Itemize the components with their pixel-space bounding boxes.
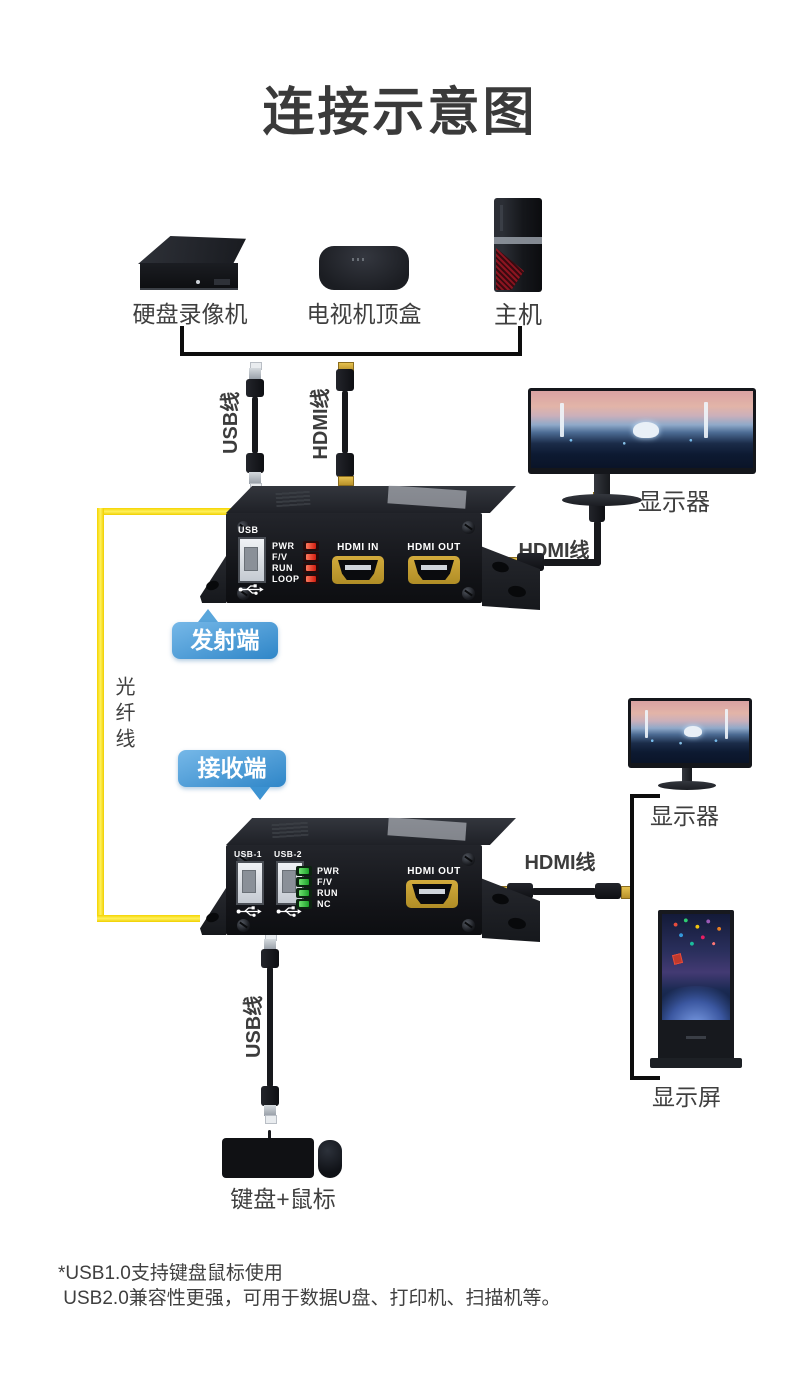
- usb-cable-bottom-label: USB线: [237, 998, 261, 1058]
- pc-tower-label: 主机: [470, 295, 566, 330]
- mouse-image: [318, 1140, 342, 1178]
- rx-usb2-label: USB-2: [274, 849, 302, 859]
- fiber-label: 光纤线: [112, 676, 138, 766]
- rx-led-label: F/V: [317, 877, 333, 887]
- scene-earth: [662, 986, 730, 1020]
- connection-diagram: 连接示意图 硬盘录像机 电视机顶盒 主机 USB线 HDMI线 光纤线 USB: [0, 0, 800, 1397]
- tx-hdmi-in-port: [332, 556, 384, 584]
- screw-icon: [462, 521, 475, 534]
- usb-cable-bottom: [261, 1086, 279, 1106]
- hdmi-port-tongue: [421, 565, 447, 570]
- tx-led-label: LOOP: [272, 574, 300, 584]
- scene-minaret: [560, 403, 564, 437]
- tx-hdmi-out-port: [408, 556, 460, 584]
- usb-port-tongue: [282, 870, 296, 893]
- rx-led: [299, 901, 309, 907]
- dvr-image: [138, 236, 246, 264]
- usb-icon: [236, 905, 262, 918]
- screw-icon: [462, 587, 475, 600]
- dvr-front-panel: [140, 263, 238, 290]
- tx-led: [306, 565, 316, 571]
- dvr-label: 硬盘录像机: [120, 295, 260, 329]
- footnote-line2: USB2.0兼容性更强，可用于数据U盘、打印机、扫描机等。: [58, 1283, 560, 1310]
- tx-led-label: F/V: [272, 552, 288, 562]
- displays-bracket-line: [630, 794, 634, 1080]
- rx-hdmi-out-label: HDMI OUT: [404, 866, 464, 877]
- usb-cable-top: [252, 396, 258, 454]
- hdmi-port-tongue: [345, 565, 371, 570]
- scene-dome: [684, 726, 702, 737]
- hdmi-cable-top-label: HDMI线: [304, 386, 328, 462]
- rx-led: [299, 879, 309, 885]
- pc-tower-band: [494, 237, 542, 244]
- tx-usb-port: [238, 537, 266, 583]
- screw-icon: [237, 919, 250, 932]
- monitor-top-base: [562, 494, 642, 506]
- pc-tower-slot: [500, 205, 503, 231]
- usb-cable-top: [246, 379, 264, 397]
- hdmi-cable-top: [336, 369, 354, 391]
- tx-badge-arrow: [198, 609, 218, 622]
- tx-led: [306, 554, 316, 560]
- fiber-line-vertical: [97, 508, 104, 922]
- footnote-line1: *USB1.0支持键盘鼠标使用: [58, 1258, 283, 1285]
- tx-led: [306, 576, 316, 582]
- monitor-top-label: 显示器: [638, 482, 748, 517]
- monitor-mid-stand: [682, 768, 692, 782]
- receiver-ear-left: [200, 888, 226, 935]
- hdmi-cable-rx: [531, 888, 597, 895]
- usb-port-tongue: [242, 870, 256, 893]
- keyboard-image: [222, 1138, 314, 1178]
- rx-led: [299, 890, 309, 896]
- monitor-mid-label: 显示器: [650, 797, 760, 831]
- hdmi-port-cavity: [338, 560, 378, 580]
- tx-led-label: PWR: [272, 541, 295, 551]
- rx-hdmi-out-port: [406, 880, 458, 908]
- dvr-knob: [196, 280, 200, 284]
- signage-base: [650, 1058, 742, 1068]
- rx-usb1-port: [236, 861, 264, 905]
- tx-hdmi-out-label: HDMI OUT: [404, 542, 464, 553]
- transmitter-top: [226, 486, 516, 513]
- scene-minaret: [704, 402, 708, 438]
- rx-badge: 接收端: [178, 750, 286, 787]
- usb-cable-bottom: [267, 966, 273, 1088]
- hdmi-cable-tx: [542, 559, 601, 566]
- keyboard-mouse-label: 键盘+鼠标: [208, 1180, 358, 1214]
- usb-icon: [238, 583, 264, 596]
- page-title: 连接示意图: [0, 70, 800, 145]
- sources-bracket-line: [180, 326, 522, 356]
- transmitter-ear-left: [200, 556, 226, 603]
- hdmi-cable-top: [342, 390, 348, 454]
- receiver-top: [226, 818, 516, 845]
- screw-icon: [462, 853, 475, 866]
- settop-box-image: [319, 246, 409, 290]
- tx-led-label: RUN: [272, 563, 293, 573]
- screw-icon: [462, 919, 475, 932]
- scene-minaret: [725, 709, 728, 739]
- usb-port-tongue: [244, 547, 258, 571]
- scene-dome: [633, 422, 659, 438]
- hdmi-port-tongue: [419, 889, 445, 894]
- signage-logo: [686, 1036, 706, 1039]
- rx-led-label: RUN: [317, 888, 338, 898]
- rx-badge-arrow: [250, 787, 270, 800]
- monitor-top-stand: [594, 474, 610, 496]
- rx-led-label: PWR: [317, 866, 340, 876]
- usb-cable-bottom: [265, 1115, 277, 1124]
- tx-led: [306, 543, 316, 549]
- tx-badge: 发射端: [172, 622, 278, 659]
- hdmi-cable-rx-label: HDMI线: [518, 846, 602, 875]
- monitor-top-screen: [531, 391, 753, 468]
- fiber-line-bottom: [97, 915, 200, 922]
- signage-screen: [662, 914, 730, 1020]
- transmitter-sticker: [276, 490, 311, 507]
- usb-cable-top: [246, 453, 264, 473]
- hdmi-cable-top: [336, 453, 354, 477]
- hdmi-cable-tx: [594, 520, 601, 566]
- hdmi-cable-top: [338, 476, 354, 486]
- scene-minaret: [645, 710, 648, 738]
- scene-gift: [672, 953, 683, 965]
- monitor-mid-base: [658, 781, 716, 790]
- tx-usb-port-label: USB: [238, 525, 259, 535]
- rx-usb1-label: USB-1: [234, 849, 262, 859]
- rx-led: [299, 868, 309, 874]
- settop-box-dots: [352, 258, 366, 261]
- signage-label: 显示屏: [652, 1078, 762, 1112]
- rx-led-label: NC: [317, 899, 331, 909]
- hdmi-port-cavity: [414, 560, 454, 580]
- hdmi-port-cavity: [412, 884, 452, 904]
- hdmi-cable-rx: [595, 883, 621, 899]
- usb-cable-top-label: USB线: [214, 394, 238, 454]
- tx-hdmi-in-label: HDMI IN: [330, 542, 386, 553]
- monitor-mid-screen: [631, 701, 749, 763]
- receiver-sticker: [272, 821, 309, 838]
- dvr-ports: [214, 279, 230, 285]
- settop-box-label: 电视机顶盒: [300, 295, 428, 329]
